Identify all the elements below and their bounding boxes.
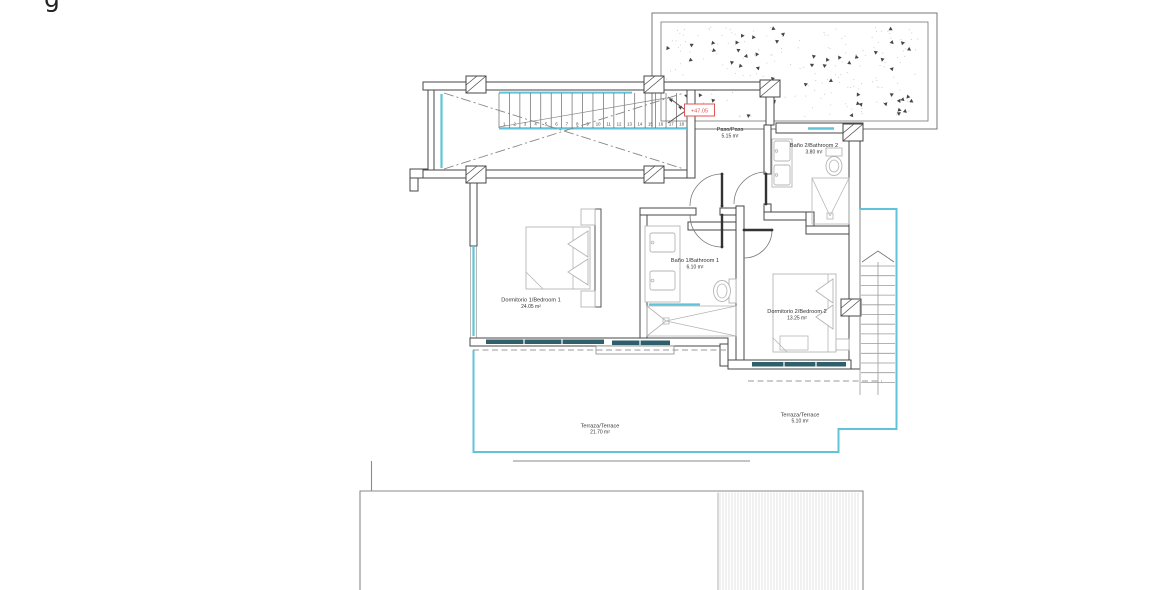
floor-plan-drawing: 123456789101112131415161718 — [0, 0, 1165, 590]
sink — [774, 141, 790, 161]
stair-number: 15 — [648, 122, 653, 127]
nightstand — [836, 339, 849, 350]
room-area-dormitorio2: 13.25 m² — [787, 316, 807, 322]
room-label-paso: Paso/Pass — [717, 127, 744, 133]
toilet-bowl — [826, 157, 842, 176]
room-label-bano1: Baño 1/Bathroom 1 — [671, 258, 719, 264]
column-symbol — [644, 76, 664, 93]
stair-number: 16 — [658, 122, 663, 127]
level-value: +47.05 — [691, 109, 708, 115]
room-area-terraza1: 21.70 m² — [590, 430, 610, 436]
toilet-tank — [826, 148, 842, 156]
stair-number: 18 — [679, 122, 684, 127]
room-label-bano2: Baño 2/Bathroom 2 — [790, 143, 838, 149]
stair-number: 8 — [576, 122, 579, 127]
shower — [647, 306, 736, 336]
stair-number: 12 — [617, 122, 622, 127]
level-marker: +47.05 — [685, 104, 715, 116]
column-symbol — [466, 166, 486, 183]
stair-number: 17 — [669, 122, 674, 127]
column-symbol — [841, 299, 861, 316]
stair-number: 10 — [596, 122, 601, 127]
stair-number: 14 — [638, 122, 643, 127]
interior-stairs: 123456789101112131415161718 — [444, 93, 687, 169]
room-area-dormitorio1: 24.05 m² — [521, 304, 541, 310]
room-area-bano2: 3.80 m² — [806, 150, 823, 156]
hatched-area — [720, 493, 858, 590]
headboard-wall — [595, 209, 601, 307]
room-area-bano1: 6.10 m² — [687, 265, 704, 271]
column-symbol — [760, 80, 780, 97]
room-label-dormitorio2: Dormitorio 2/Bedroom 2 — [767, 309, 826, 315]
column-symbol — [843, 124, 863, 141]
column-symbol — [466, 76, 486, 93]
room-area-terraza2: 5.10 m² — [792, 419, 809, 425]
column-symbol — [644, 166, 664, 183]
stair-number: 13 — [627, 122, 632, 127]
bed-1 — [526, 209, 601, 307]
nightstand — [581, 291, 595, 307]
shower — [812, 178, 849, 224]
stair-number: 11 — [606, 122, 611, 127]
sink — [774, 165, 790, 185]
exterior-stair-arrow — [862, 251, 894, 262]
floor-plan-canvas: g — [0, 0, 1165, 590]
room-area-paso: 5.15 m² — [722, 134, 739, 140]
stair-number: 6 — [555, 122, 558, 127]
site-outline — [360, 461, 863, 590]
exterior-stairs — [860, 209, 895, 395]
room-label-dormitorio1: Dormitorio 1/Bedroom 1 — [501, 298, 560, 304]
nightstand — [581, 209, 595, 225]
stair-number: 7 — [566, 122, 569, 127]
